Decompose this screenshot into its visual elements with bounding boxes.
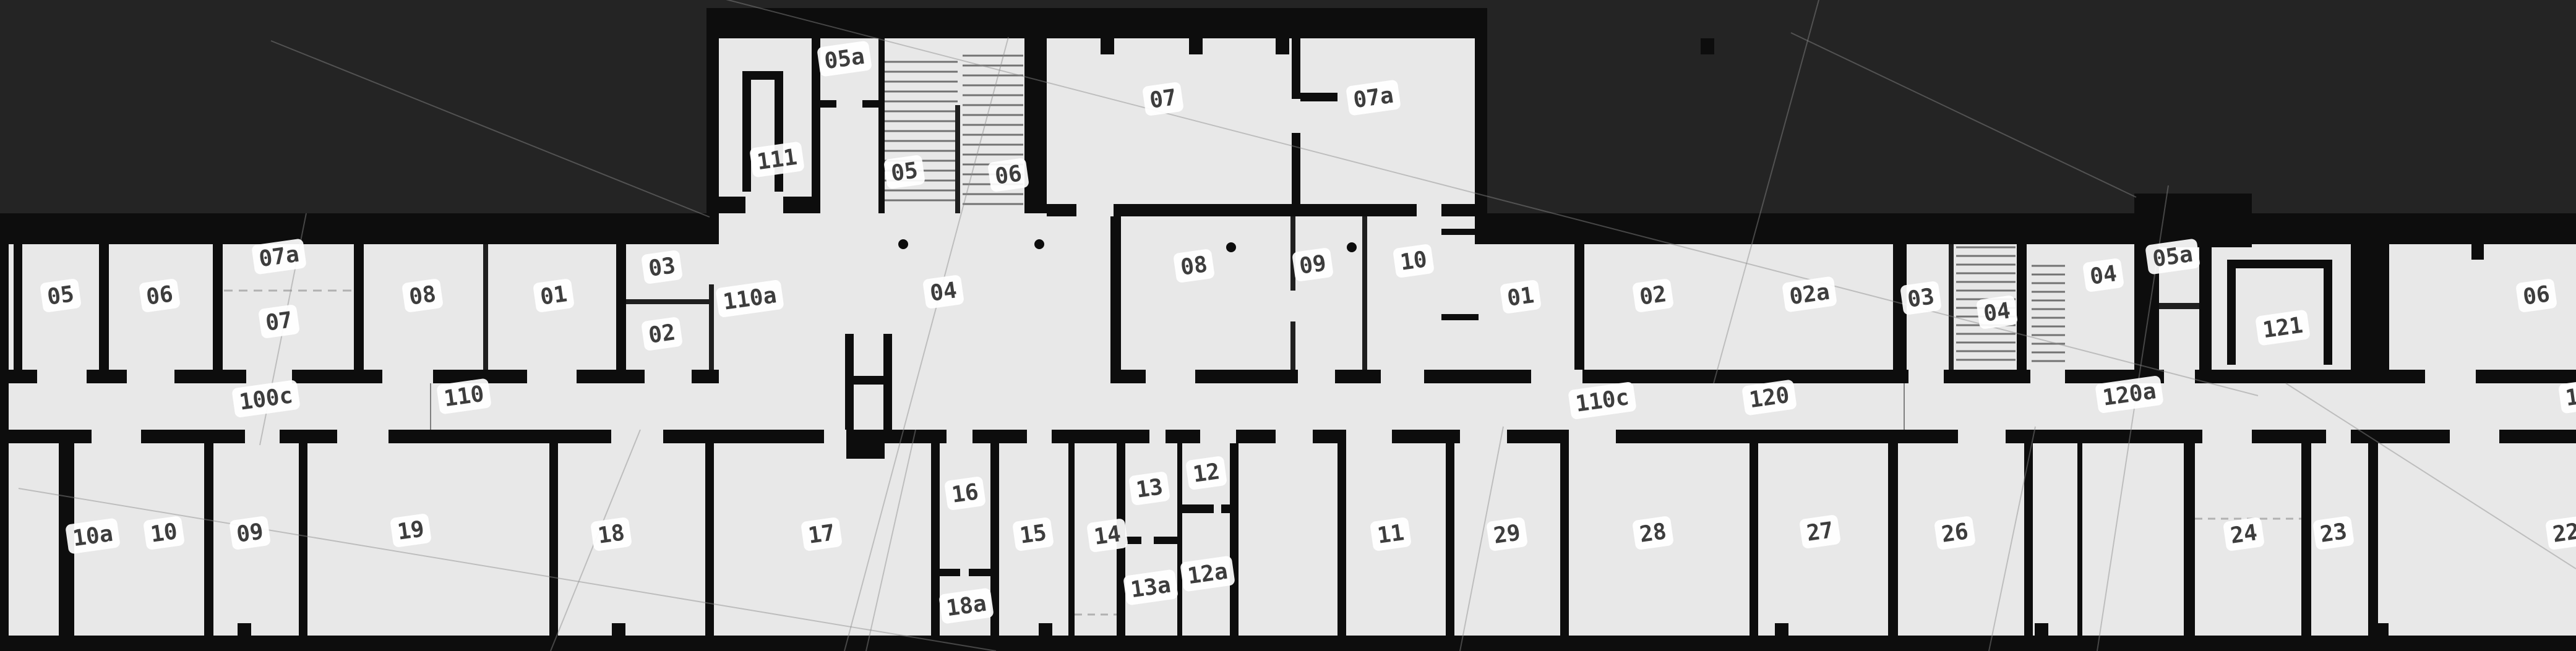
room-label-24: 24 [2223, 517, 2265, 551]
room-divider-wall [299, 443, 307, 636]
wall-stub [1701, 38, 1714, 54]
outer-wall-bottom [0, 636, 2576, 651]
wall-06-07 [1024, 38, 1047, 213]
room-label-04: 04 [2082, 258, 2124, 292]
corridor-south-wall [2499, 430, 2576, 443]
room03-02-divider [626, 299, 709, 304]
north-wing-right-wall [1475, 8, 1487, 244]
room-label-13: 13 [1128, 471, 1170, 506]
wall-segment [878, 38, 885, 213]
room-label-12: 12 [1185, 456, 1227, 490]
corridor-south-wall [280, 430, 337, 443]
room-label-10: 10 [1393, 244, 1435, 278]
corridor-north-wall [692, 370, 719, 383]
corridor-north-wall [0, 370, 37, 383]
label-text: 07 [264, 307, 294, 336]
wall-stub [2035, 623, 2048, 636]
room-divider-wall [2184, 443, 2195, 636]
room13-divider [1154, 537, 1177, 544]
wall-stub [238, 623, 251, 636]
label-text: 03 [647, 253, 677, 282]
room13-divider [1125, 537, 1141, 544]
label-text: 29 [1492, 520, 1522, 549]
corridor-north-wall [87, 370, 127, 383]
corridor-north-wall [1944, 370, 2030, 383]
wall-segment [709, 284, 714, 370]
label-text: 04 [929, 278, 959, 307]
label-text: 05 [46, 281, 76, 310]
label-text: 16 [950, 479, 981, 508]
label-text: 17 [807, 520, 837, 549]
elevator-121-wall [2227, 260, 2332, 268]
wing-mid-wall [1441, 204, 1475, 216]
double-door [883, 334, 892, 430]
room08-left-wall [1110, 216, 1121, 370]
wall-segment [483, 244, 488, 370]
room-divider-wall [931, 443, 940, 636]
room-label-27: 27 [1799, 514, 1841, 549]
column-dot [898, 239, 908, 249]
wall-segment [1574, 244, 1584, 370]
label-text: 09 [1298, 250, 1328, 279]
column-dot [1347, 242, 1357, 252]
room-divider-wall [2077, 443, 2082, 636]
corridor-north-wall [1195, 370, 1298, 383]
label-text: 09 [235, 519, 265, 548]
corridor-north-wall [292, 370, 382, 383]
wall-segment [1290, 321, 1295, 370]
room-label-06: 06 [987, 158, 1029, 192]
label-text: 12 [1191, 459, 1222, 488]
room-label-07: 07 [258, 304, 300, 339]
wall-segment [1292, 38, 1300, 99]
room-label-08: 08 [401, 278, 444, 313]
stair-mid-wall [955, 105, 960, 213]
label-text: 06 [2522, 281, 2552, 310]
corridor-south-wall [972, 430, 1027, 443]
corridor-north-wall [174, 370, 246, 383]
corridor-north-wall [2195, 370, 2425, 383]
room-label-26: 26 [1934, 516, 1976, 550]
floor-plan-canvas[interactable]: 050607a0708010302110a05a11105060707a0408… [0, 0, 2576, 651]
label-text: 02 [647, 320, 677, 349]
label-text: 01 [1506, 283, 1536, 312]
room-divider-wall [1560, 443, 1569, 636]
label-text: 19 [396, 516, 426, 545]
room-divider-wall [2301, 443, 2311, 636]
wall-stub [2471, 244, 2484, 260]
label-text: 10 [149, 519, 179, 548]
corridor-south-wall [1616, 430, 1958, 443]
room-label-02: 02 [1632, 278, 1674, 313]
corridor-south-wall [1236, 430, 1276, 443]
wing-mid-wall [1047, 204, 1076, 216]
room-label-04: 04 [922, 274, 964, 309]
wall-pillar [846, 430, 885, 459]
room-label-01: 01 [533, 278, 575, 313]
label-text: 23 [2319, 519, 2349, 548]
room-label-06: 06 [2515, 278, 2557, 313]
label-text: 13 [1135, 474, 1165, 503]
window-mark [1441, 314, 1479, 320]
outer-wall-top-left [0, 213, 718, 244]
wall-segment [2017, 244, 2027, 370]
column-dot [1226, 242, 1236, 252]
room-label-18: 18 [590, 517, 632, 551]
elevator-111-wall [742, 71, 751, 192]
room-divider-wall [1750, 443, 1758, 636]
wall-segment [14, 244, 22, 370]
wing-mid-wall [1114, 204, 1417, 216]
corridor-south-wall [2252, 430, 2326, 443]
label-text: 05 [890, 158, 920, 187]
room-divider-wall [1177, 443, 1182, 636]
room-label-14: 14 [1086, 518, 1128, 553]
wall-segment [1949, 244, 1954, 370]
room-divider-wall [1068, 443, 1075, 636]
room-label-11: 11 [1370, 517, 1412, 551]
label-text: 07 [1148, 85, 1179, 114]
wall-segment [812, 38, 820, 213]
wall-segment [1362, 216, 1367, 370]
tower-right-wall [2351, 213, 2389, 383]
room-label-22: 22 [2545, 516, 2576, 550]
room-divider-wall [1888, 443, 1898, 636]
label-text: 02 [1638, 281, 1668, 310]
room16-18a-divider [940, 569, 960, 576]
wall-stub [1189, 38, 1203, 54]
room-label-02: 02 [641, 317, 683, 351]
label-text: 14 [1093, 521, 1123, 550]
floor-plan-viewport: 050607a0708010302110a05a11105060707a0408… [0, 0, 2576, 651]
corridor-south-wall [1392, 430, 1460, 443]
room-label-05: 05 [40, 278, 82, 313]
outer-wall-top-right [1482, 213, 2576, 244]
wall-segment [99, 244, 109, 370]
double-door [845, 334, 854, 430]
room-label-17: 17 [801, 517, 843, 551]
room-label-29: 29 [1486, 517, 1528, 551]
room-label-19: 19 [390, 513, 432, 548]
corridor-south-wall [1313, 430, 1346, 443]
room-label-23: 23 [2312, 516, 2355, 550]
label-text: 24 [2229, 520, 2259, 549]
room16-18a-divider [969, 569, 990, 576]
room-label-03: 03 [641, 250, 683, 284]
wall-stub [1775, 623, 1788, 636]
elevator-121-wall [2324, 260, 2332, 365]
label-text: 11 [1376, 520, 1406, 549]
room-divider-wall [204, 443, 213, 636]
room-label-15: 15 [1012, 517, 1054, 551]
corridor-north-wall [1424, 370, 1487, 383]
room-label-04: 04 [1976, 295, 2018, 330]
room-label-16: 16 [944, 476, 986, 511]
room-label-08: 08 [1173, 249, 1215, 283]
corridor-north-wall [1582, 370, 1908, 383]
label-text: 08 [1179, 252, 1209, 281]
label-text: 28 [1638, 519, 1668, 548]
room-label-10: 10 [143, 516, 185, 550]
room-label-05: 05 [883, 155, 925, 189]
label-text: 06 [145, 281, 175, 310]
corridor-south-wall [1052, 430, 1149, 443]
room-label-01: 01 [1500, 279, 1542, 314]
label-text: 22 [2551, 519, 2576, 548]
corridor-north-wall [577, 370, 645, 383]
north-wing-top-wall [706, 8, 1487, 38]
wall-segment [2199, 244, 2212, 383]
room-label-09: 09 [229, 516, 271, 550]
room-label-06: 06 [139, 278, 181, 313]
corridor-south-wall [2351, 430, 2450, 443]
label-text: 03 [1906, 284, 1936, 313]
wall-stub [1300, 93, 1337, 101]
label-text: 06 [994, 161, 1024, 190]
wall-stub [1101, 38, 1114, 54]
label-text: 01 [539, 281, 569, 310]
door-jamb [719, 197, 745, 213]
label-text: 18 [596, 520, 627, 549]
room-divider-wall [549, 443, 558, 636]
elevator-111-wall [742, 71, 783, 80]
room12-divider [1221, 504, 1230, 513]
wall-stub [612, 623, 625, 636]
corridor-north-wall [1335, 370, 1381, 383]
window-mark [1441, 229, 1479, 235]
corridor-south-wall [0, 430, 92, 443]
wall-segment [616, 244, 626, 370]
room-divider-wall [1230, 443, 1239, 636]
wall-segment [1292, 133, 1300, 204]
wall-stub [2375, 623, 2389, 636]
door-jamb [783, 197, 812, 213]
room-label-03: 03 [1900, 281, 1942, 315]
corridor-south-wall [141, 430, 245, 443]
room-label-09: 09 [1292, 247, 1334, 282]
wall-stub [1276, 38, 1289, 54]
corridor-south-wall [1166, 430, 1200, 443]
corridor-south-wall [663, 430, 824, 443]
corridor-north-wall [1110, 370, 1146, 383]
room-label-28: 28 [1632, 516, 1674, 550]
room-divider-wall [1337, 443, 1346, 636]
corridor-north-wall [2476, 370, 2576, 383]
room-label-07: 07 [1142, 82, 1184, 116]
label-text: 08 [408, 281, 438, 310]
door-gap [836, 100, 862, 108]
column-dot [1034, 239, 1044, 249]
corridor-south-wall [2006, 430, 2202, 443]
corridor-south-wall [389, 430, 611, 443]
label-text: 26 [1940, 519, 1970, 548]
corridor-south-wall [1507, 430, 1569, 443]
wall-segment [213, 244, 223, 370]
label-text: 10 [1399, 247, 1429, 276]
elevator-121-wall [2227, 260, 2236, 365]
corridor-north-wall [1487, 370, 1531, 383]
north-wing-left-wall [706, 8, 719, 244]
room-divider-wall [1446, 443, 1454, 636]
room12-divider [1182, 504, 1214, 513]
label-text: 15 [1018, 520, 1049, 549]
room-divider-wall [705, 443, 714, 636]
label-text: 04 [2089, 261, 2119, 290]
label-text: 04 [1982, 298, 2012, 327]
wall-stub [1039, 623, 1052, 636]
room05a-divider [2159, 303, 2199, 309]
room-divider-wall [2368, 443, 2378, 636]
wall-segment [354, 244, 364, 370]
double-door [854, 376, 883, 385]
label-text: 27 [1805, 517, 1835, 547]
